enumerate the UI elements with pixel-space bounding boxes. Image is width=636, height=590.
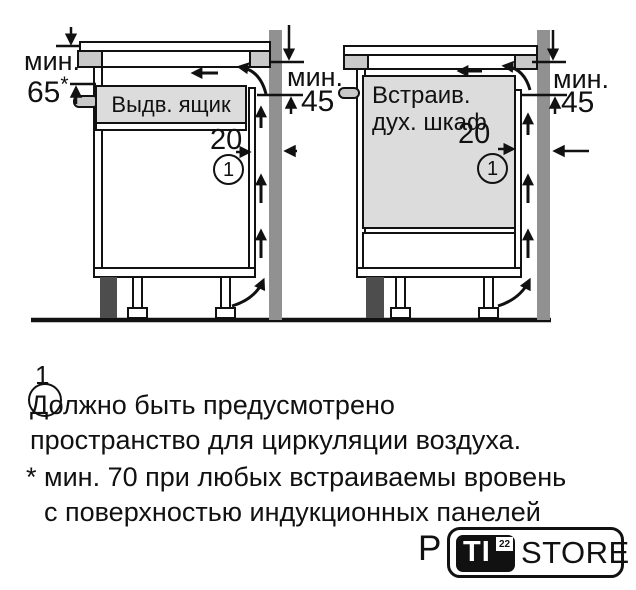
right-wall xyxy=(537,30,550,320)
right-gap-value: 20 xyxy=(458,120,490,149)
left-dim-min-value: 65* xyxy=(27,74,69,108)
left-wall-dim-value: 45 xyxy=(301,87,334,117)
right-plinth-panel xyxy=(366,277,384,318)
right-oven-label-line1: Встраив. xyxy=(372,82,487,109)
left-dim-min-label: мин. xyxy=(24,48,80,75)
footnote-asterisk: * xyxy=(60,73,68,96)
footnote-asterisk-line1: * мин. 70 при любых встраиваемы вровень xyxy=(26,464,566,491)
left-worktop-and-hob xyxy=(78,42,270,67)
left-drawer-label: Выдв. ящик xyxy=(97,86,245,123)
store-logo-store-text: STORE xyxy=(521,537,630,568)
store-logo-superscript: 22 xyxy=(496,537,513,551)
right-callout-1: 1 xyxy=(477,153,508,184)
left-wall xyxy=(269,30,282,320)
installation-clearance-diagram xyxy=(0,0,636,350)
left-plinth-panel xyxy=(100,277,117,318)
left-gap-value: 20 xyxy=(210,126,242,155)
store-logo: TI 22 STORE xyxy=(447,527,624,578)
watermark-prefix: P xyxy=(418,531,441,566)
footnote-line2: пространство для циркуляции воздуха. xyxy=(30,427,521,454)
store-logo-ti-block: TI 22 xyxy=(456,535,515,572)
right-wall-dim-value: 45 xyxy=(561,88,594,118)
left-callout-1: 1 xyxy=(213,154,244,185)
footnote-callout-number: 1 xyxy=(35,362,49,388)
store-logo-ti-text: TI xyxy=(463,538,491,567)
footnote-line1: Должно быть предусмотрено xyxy=(30,392,395,419)
footnote-asterisk-line2: с поверхностью индукционных панелей xyxy=(44,499,541,526)
manual-page: мин. 65* Выдв. ящик мин. 45 20 1 Встраив… xyxy=(0,0,636,590)
